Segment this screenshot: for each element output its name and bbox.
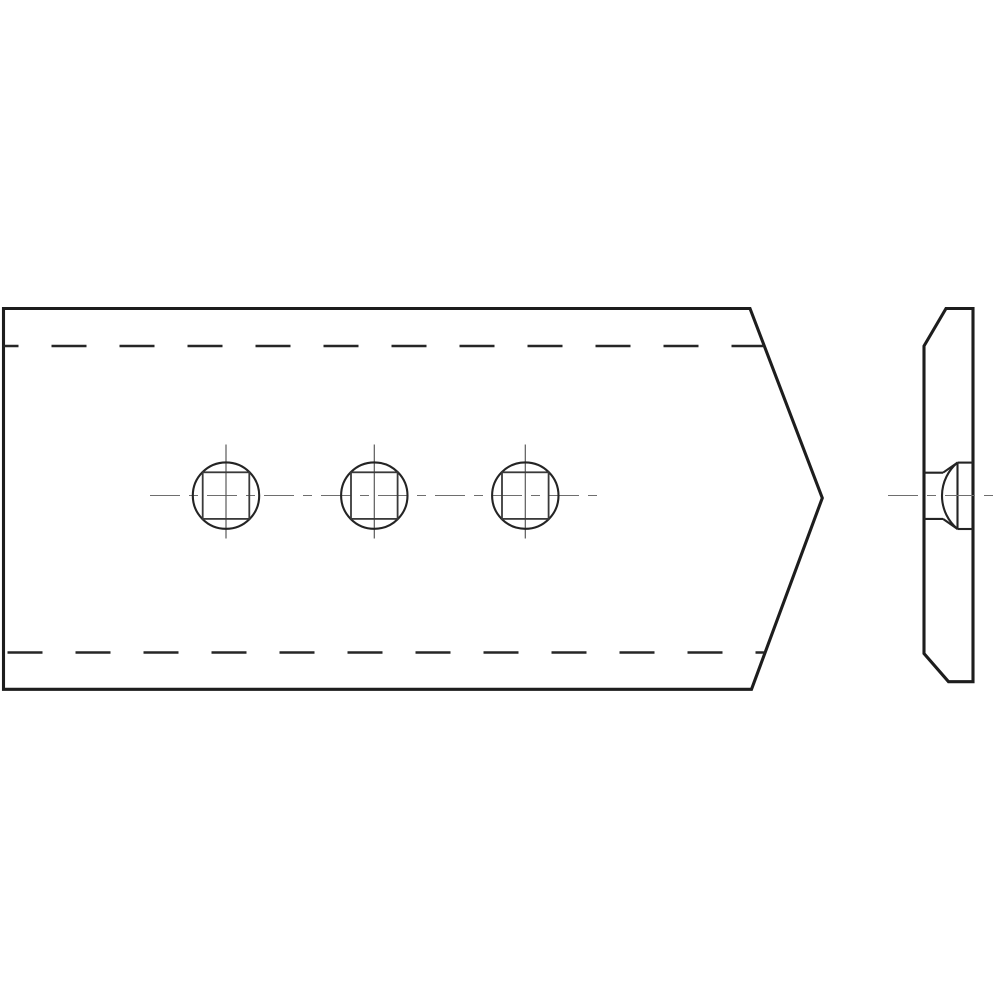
side-view (888, 309, 1000, 682)
technical-drawing (0, 0, 1000, 1000)
drawing-page (0, 0, 1000, 1000)
front-view-outline (4, 309, 823, 690)
front-view (4, 309, 823, 690)
